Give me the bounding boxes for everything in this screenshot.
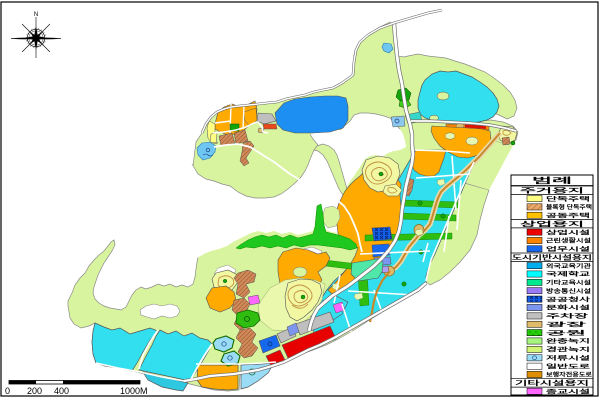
svg-text:상업용지: 상업용지 xyxy=(520,219,585,228)
svg-text:보행자전용도로: 보행자전용도로 xyxy=(546,371,592,379)
svg-text:400: 400 xyxy=(54,386,69,396)
svg-text:업무시설: 업무시설 xyxy=(546,245,590,253)
svg-text:종교시설: 종교시설 xyxy=(546,388,590,396)
svg-text:0: 0 xyxy=(5,386,10,396)
svg-text:저류시설: 저류시설 xyxy=(546,354,590,362)
svg-text:광장: 광장 xyxy=(546,321,589,329)
svg-text:일반도로: 일반도로 xyxy=(546,362,590,370)
svg-text:주거용지: 주거용지 xyxy=(520,186,585,195)
svg-text:상업시설: 상업시설 xyxy=(546,228,590,236)
svg-text:방송통신시설: 방송통신시설 xyxy=(546,287,591,295)
svg-text:200: 200 xyxy=(27,386,42,396)
svg-text:기타교육시설: 기타교육시설 xyxy=(546,279,591,287)
svg-text:근린생활시설: 근린생활시설 xyxy=(546,237,591,245)
svg-text:경관녹지: 경관녹지 xyxy=(546,346,590,354)
svg-text:1000M: 1000M xyxy=(120,386,148,396)
svg-text:공동주택: 공동주택 xyxy=(546,212,590,220)
svg-text:공공청사: 공공청사 xyxy=(546,295,592,303)
svg-text:기타시설용지: 기타시설용지 xyxy=(515,378,589,387)
svg-text:공원: 공원 xyxy=(546,329,586,337)
svg-text:국제학교: 국제학교 xyxy=(546,270,590,278)
svg-text:범례: 범례 xyxy=(532,175,572,185)
svg-text:완충녹지: 완충녹지 xyxy=(546,337,590,345)
svg-text:단독주택: 단독주택 xyxy=(546,195,590,203)
svg-text:도시기반시설용지: 도시기반시설용지 xyxy=(512,253,592,262)
svg-text:문화시설: 문화시설 xyxy=(546,304,590,312)
svg-text:외국교육기관: 외국교육기관 xyxy=(546,262,592,270)
svg-text:블록형 단독주택: 블록형 단독주택 xyxy=(546,203,592,211)
svg-text:주차장: 주차장 xyxy=(546,312,590,320)
